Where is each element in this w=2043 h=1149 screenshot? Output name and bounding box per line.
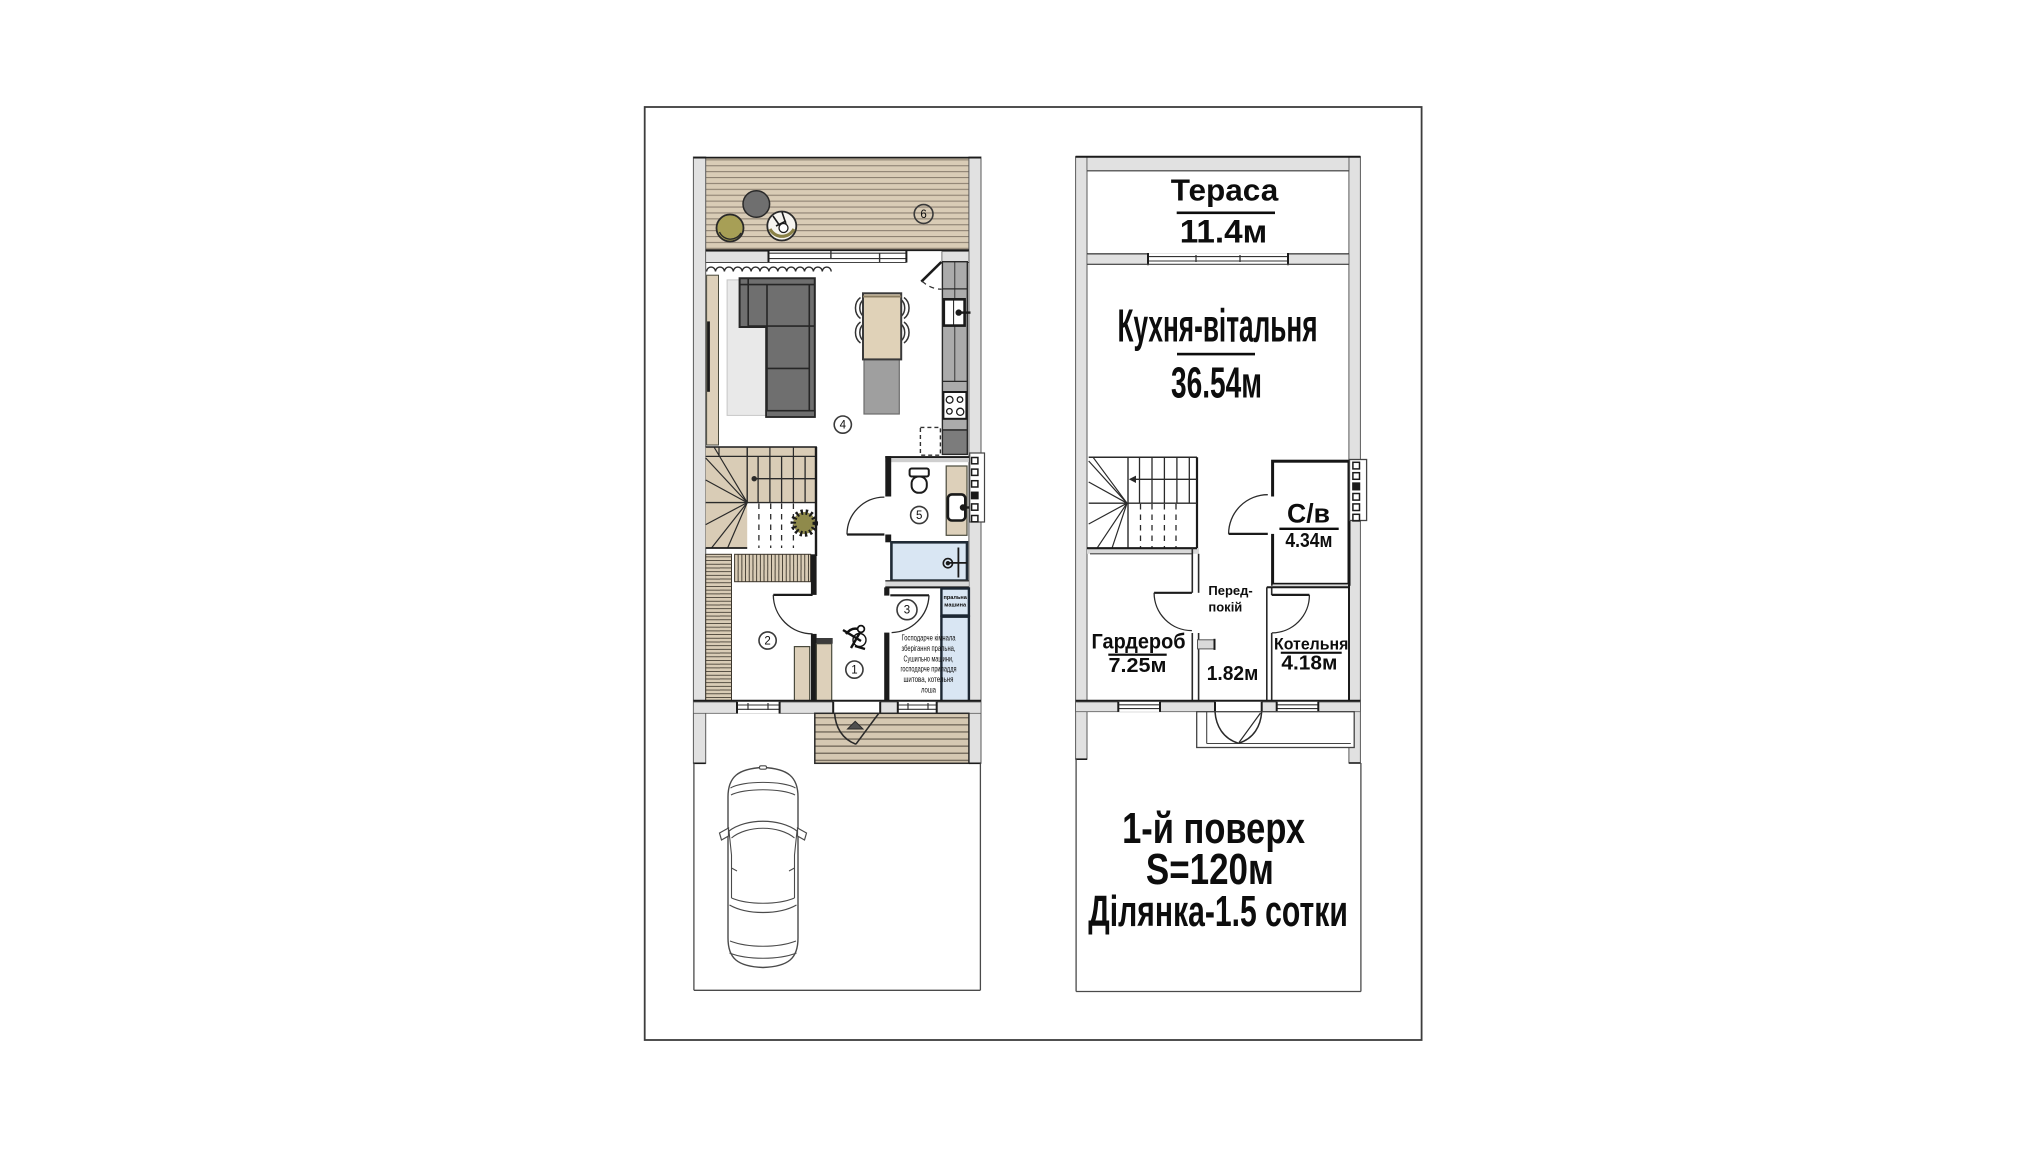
svg-text:1: 1 — [851, 665, 857, 677]
svg-text:зберігання пральна,: зберігання пральна, — [902, 643, 956, 653]
svg-text:Ділянка-1.5 сотки: Ділянка-1.5 сотки — [1088, 887, 1348, 936]
svg-text:2: 2 — [764, 636, 770, 648]
svg-text:машина: машина — [944, 603, 967, 609]
svg-text:Тераса: Тераса — [1171, 173, 1279, 208]
svg-text:11.4м: 11.4м — [1180, 214, 1268, 250]
svg-text:С/в: С/в — [1287, 499, 1330, 529]
svg-text:4.34м: 4.34м — [1285, 529, 1332, 552]
svg-text:7.25м: 7.25м — [1109, 655, 1167, 677]
svg-text:Гардероб: Гардероб — [1092, 631, 1186, 654]
svg-text:лоша: лоша — [921, 685, 936, 695]
svg-text:6: 6 — [920, 209, 926, 221]
svg-text:шитова, котельня: шитова, котельня — [904, 674, 954, 684]
svg-text:4.18м: 4.18м — [1281, 652, 1337, 674]
svg-text:1.82м: 1.82м — [1207, 663, 1259, 685]
svg-text:Перед-: Перед- — [1208, 583, 1252, 598]
svg-text:3: 3 — [904, 605, 910, 617]
svg-text:Кухня-вітальня: Кухня-вітальня — [1118, 300, 1318, 352]
svg-text:Сушильно машини,: Сушильно машини, — [904, 653, 954, 663]
svg-text:36.54м: 36.54м — [1171, 359, 1262, 408]
svg-text:Котельня: Котельня — [1274, 635, 1348, 653]
svg-text:4: 4 — [840, 420, 847, 432]
svg-text:Господарче кімнала: Господарче кімнала — [902, 633, 956, 643]
svg-text:5: 5 — [916, 510, 922, 522]
svg-text:покій: покій — [1208, 600, 1242, 615]
svg-text:господарче приладдя: господарче приладдя — [901, 664, 957, 674]
svg-text:пральна: пральна — [944, 595, 968, 601]
